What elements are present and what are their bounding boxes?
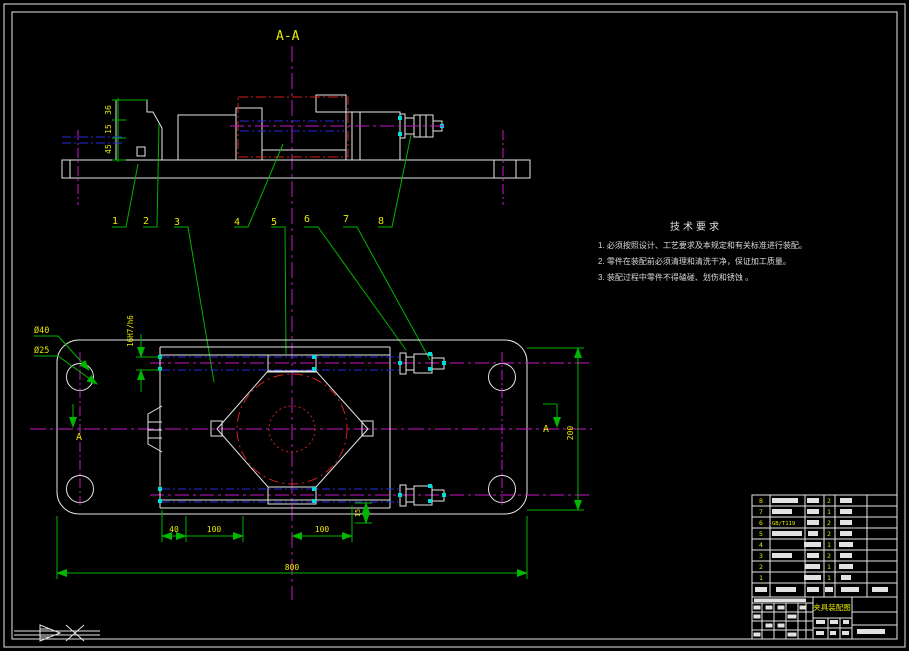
clamp-part: [116, 100, 162, 160]
section-title: A-A: [276, 29, 300, 44]
svg-text:1: 1: [827, 541, 831, 549]
svg-text:100: 100: [315, 525, 330, 534]
svg-text:100: 100: [207, 525, 222, 534]
svg-text:5: 5: [759, 530, 763, 538]
svg-text:1: 1: [827, 508, 831, 516]
part-number: 2: [143, 216, 149, 227]
svg-text:2: 2: [759, 563, 763, 571]
drawing-title: 夹具装配图: [813, 602, 851, 612]
svg-text:Ø40: Ø40: [34, 325, 49, 336]
svg-text:Ø25: Ø25: [34, 345, 49, 356]
workpiece-phantom: [238, 97, 348, 157]
block-right-hatched: [360, 112, 400, 160]
svg-text:36: 36: [104, 105, 113, 115]
bom-standard-ref: GB/T119: [772, 521, 795, 527]
block-left-hatched: [178, 115, 236, 160]
plan-view: A A: [30, 340, 592, 514]
cad-viewport: A-A 36 15 45: [0, 0, 909, 651]
svg-text:16H7/h6: 16H7/h6: [126, 315, 135, 347]
part-number: 4: [234, 217, 240, 228]
svg-text:3: 3: [759, 552, 763, 560]
svg-text:7: 7: [759, 508, 763, 516]
base-plate-section: [62, 160, 530, 178]
part-number: 8: [378, 216, 384, 227]
svg-text:45: 45: [104, 144, 113, 154]
part-number: 1: [112, 216, 118, 227]
tech-requirement-item: 2. 零件在装配前必须清理和清洗干净，保证加工质量。: [598, 254, 894, 270]
svg-text:1: 1: [827, 574, 831, 582]
svg-text:200: 200: [566, 426, 575, 441]
center-top-block: [316, 95, 346, 112]
svg-text:1: 1: [759, 574, 763, 582]
svg-text:A: A: [543, 424, 549, 435]
svg-text:2: 2: [827, 530, 831, 538]
part-number: 5: [271, 217, 277, 228]
part-number: 3: [174, 217, 180, 228]
section-cut-markers: A A: [73, 404, 557, 443]
cad-drawing: A-A 36 15 45: [0, 0, 909, 651]
svg-text:2: 2: [827, 519, 831, 527]
technical-requirements: 技术要求 1. 必须按照设计、工艺要求及本规定和有关标准进行装配。 2. 零件在…: [598, 220, 894, 286]
svg-text:15: 15: [104, 124, 113, 134]
svg-text:2: 2: [827, 497, 831, 505]
tech-requirement-item: 3. 装配过程中零件不得磕碰、划伤和锈蚀 。: [598, 270, 894, 286]
center-base-tab: [262, 150, 346, 160]
svg-text:2: 2: [827, 552, 831, 560]
svg-text:A: A: [76, 432, 82, 443]
svg-text:8: 8: [759, 497, 763, 505]
part-number: 6: [304, 214, 310, 225]
svg-text:4: 4: [759, 541, 763, 549]
part-number: 7: [343, 214, 349, 225]
part-leaders: 1 2 3 4 5 6 7 8: [112, 124, 430, 382]
bom-text-blobs: [755, 498, 888, 592]
title-block: 8 7 6 5 4 3 2 1 2 1 2 2 1 2 1 1 GB/T119: [752, 495, 897, 639]
svg-text:15: 15: [354, 509, 362, 517]
tech-requirements-title: 技术要求: [670, 220, 894, 236]
svg-text:6: 6: [759, 519, 763, 527]
tech-requirement-item: 1. 必须按照设计、工艺要求及本规定和有关标准进行装配。: [598, 238, 894, 254]
svg-text:800: 800: [285, 563, 300, 572]
block-mid: [236, 108, 262, 160]
svg-text:40: 40: [169, 525, 179, 534]
clamp-dimensions: 36 15 45: [104, 98, 148, 162]
svg-text:1: 1: [827, 563, 831, 571]
